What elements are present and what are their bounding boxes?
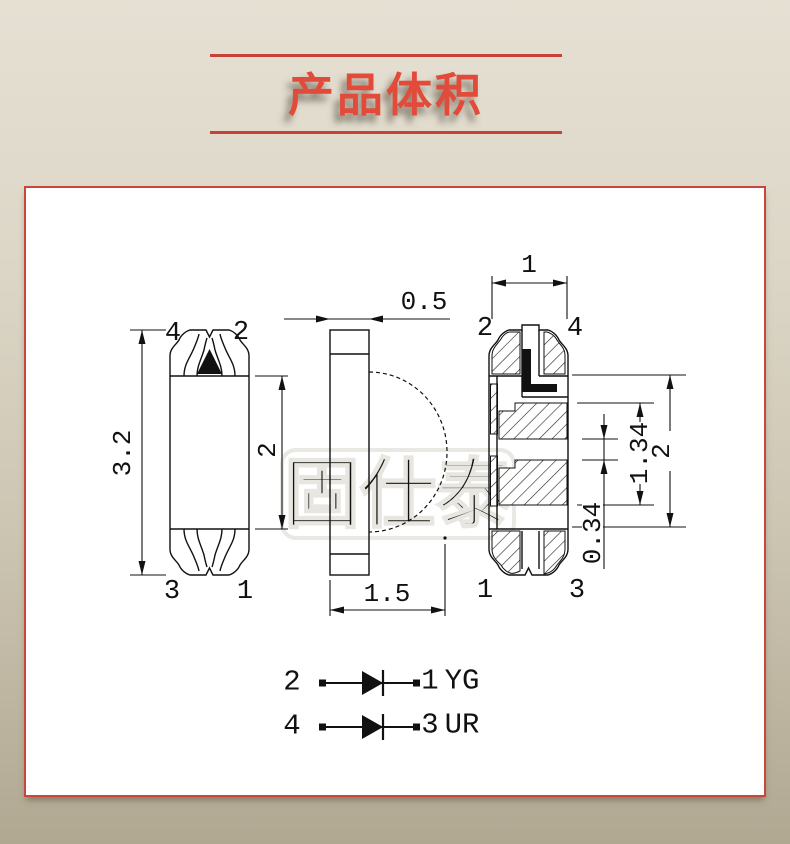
dim-1-5-dot (443, 536, 446, 539)
watermark-text: 固仕泰 (284, 453, 513, 538)
pin-label-2: 2 (233, 318, 249, 348)
back-pin-label-2: 2 (477, 314, 493, 344)
dim-pad: 0.34 (578, 502, 608, 564)
diode1-symbol (362, 671, 383, 695)
dim-width: 1 (521, 250, 537, 280)
diode1-anode-dot (319, 680, 326, 687)
polarity-triangle-mark (197, 349, 222, 374)
pin-label-3: 3 (164, 577, 180, 607)
page-title: 产品体积 (210, 65, 562, 125)
title-rule-bottom (210, 131, 562, 134)
diode2-symbol (362, 715, 383, 739)
watermark-stamp: 固仕泰 (282, 450, 514, 538)
diode-row-1: 2 1 YG (283, 665, 479, 699)
diode1-anode-pin: 2 (283, 666, 300, 699)
back-pin-label-4: 4 (567, 314, 583, 344)
diode2-color-code: UR (445, 709, 480, 742)
dim-total-thickness: 1.5 (364, 579, 411, 609)
diode1-cathode-pin: 1 (421, 665, 438, 698)
back-pin-label-1: 1 (477, 576, 493, 606)
diode1-cathode-dot (413, 680, 420, 687)
title-block: 产品体积 (210, 54, 562, 134)
diode-row-2: 4 3 UR (283, 709, 479, 743)
title-rule-top (210, 54, 562, 57)
dim-inner: 1.34 (625, 422, 655, 484)
dim-overall-height: 3.2 (108, 430, 138, 477)
dim-thickness: 0.5 (401, 287, 448, 317)
pin-label-4: 4 (165, 319, 181, 349)
diode2-cathode-dot (413, 724, 420, 731)
pin-label-1: 1 (237, 577, 253, 607)
dimension-drawing-svg: 固仕泰 3.2 2 4 2 3 1 0.5 1.5 (26, 188, 768, 799)
back-pin-label-3: 3 (569, 576, 585, 606)
diode2-cathode-pin: 3 (421, 709, 438, 742)
diode2-anode-pin: 4 (283, 710, 300, 743)
page-background: { "title": { "text": "产品体积" }, "watermar… (0, 0, 790, 844)
dim-body-height: 2 (253, 442, 283, 458)
diode2-anode-dot (319, 724, 326, 731)
drawing-panel: 固仕泰 3.2 2 4 2 3 1 0.5 1.5 (24, 186, 766, 797)
circuit-diagram: 2 1 YG 4 3 UR (283, 665, 479, 743)
diode1-color-code: YG (445, 665, 480, 698)
